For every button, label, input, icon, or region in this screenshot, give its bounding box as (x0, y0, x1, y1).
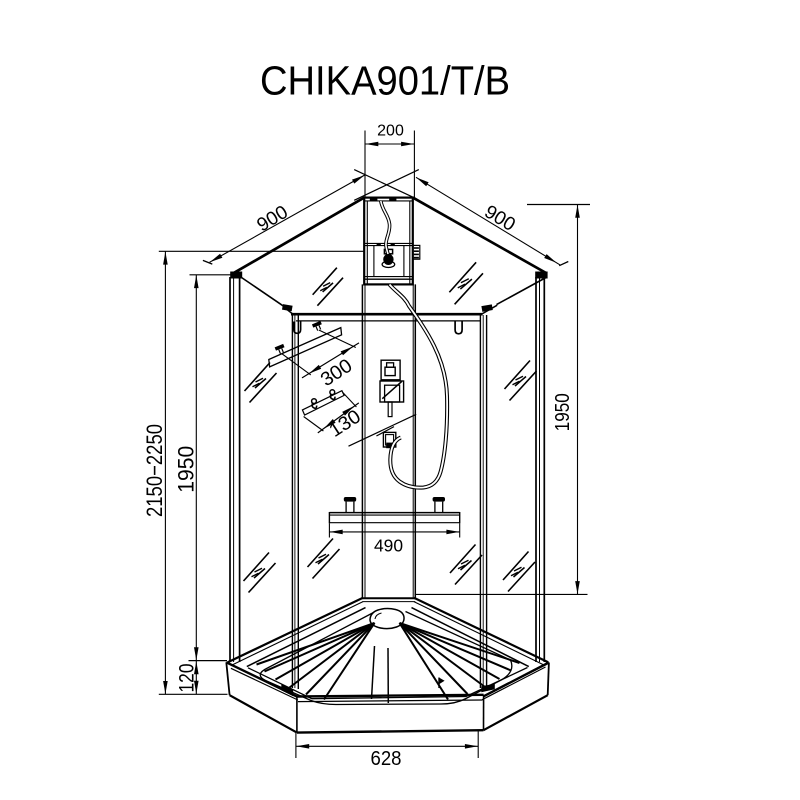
svg-text:490: 490 (374, 536, 403, 556)
svg-text:120: 120 (175, 663, 199, 692)
svg-text:1950: 1950 (173, 446, 198, 493)
svg-text:2150−2250: 2150−2250 (142, 424, 167, 517)
svg-text:200: 200 (377, 123, 404, 140)
svg-text:1950: 1950 (552, 393, 574, 431)
svg-text:CHIKA901/T/B: CHIKA901/T/B (260, 58, 510, 104)
svg-text:628: 628 (371, 748, 402, 770)
